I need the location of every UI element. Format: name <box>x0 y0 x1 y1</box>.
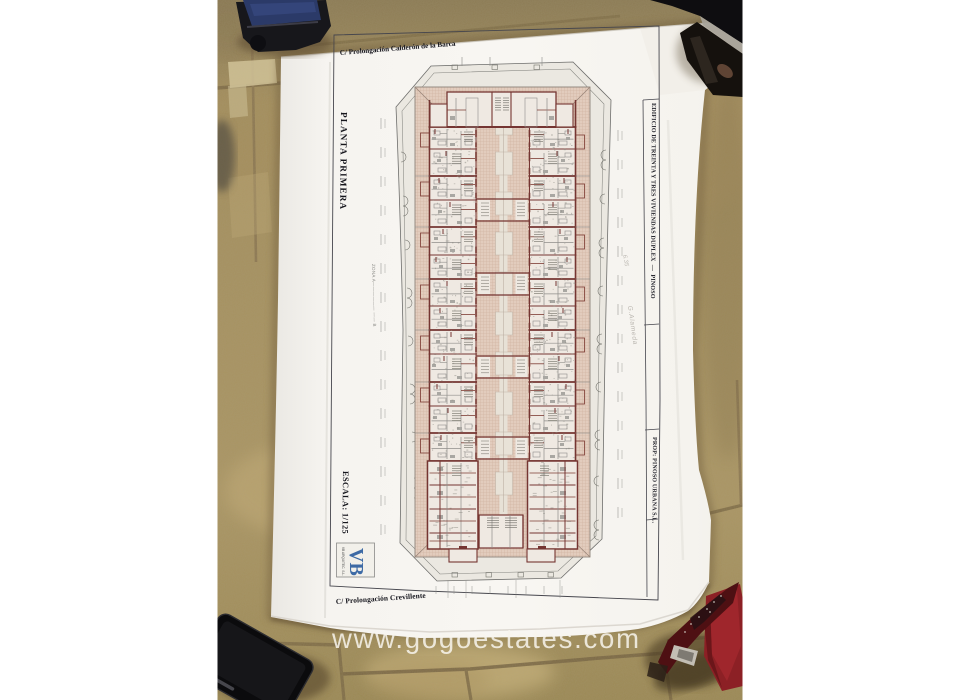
svg-text:PROP: PINOSO URBANA S.L.: PROP: PINOSO URBANA S.L. <box>651 437 657 524</box>
svg-text:www.gogoestates.com: www.gogoestates.com <box>331 623 639 654</box>
svg-text:VB ARQUITEC. S.L.: VB ARQUITEC. S.L. <box>341 547 345 576</box>
svg-text:PLANTA PRIMERA: PLANTA PRIMERA <box>338 112 349 210</box>
svg-text:VB: VB <box>345 548 367 576</box>
svg-text:EDIFICIO DE TREINTA Y TRES VIV: EDIFICIO DE TREINTA Y TRES VIVIENDAS DUP… <box>649 103 657 299</box>
svg-text:ESCALA: 1/125: ESCALA: 1/125 <box>340 471 350 534</box>
